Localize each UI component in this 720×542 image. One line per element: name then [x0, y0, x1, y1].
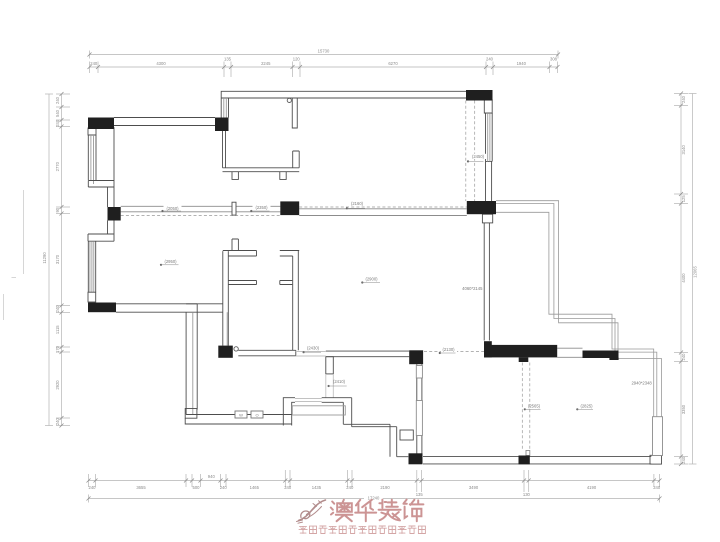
svg-text:940: 940: [208, 474, 216, 479]
svg-text:3350: 3350: [681, 404, 686, 414]
svg-text:3490: 3490: [469, 485, 479, 490]
svg-text:2920: 2920: [55, 380, 60, 390]
svg-text:11290: 11290: [42, 252, 47, 264]
svg-text:125: 125: [681, 195, 686, 203]
svg-text:2245: 2245: [261, 61, 271, 66]
svg-text:12065: 12065: [692, 266, 697, 278]
svg-text:4060*2145: 4060*2145: [462, 286, 483, 291]
svg-text:2190: 2190: [380, 485, 390, 490]
svg-text:240: 240: [681, 456, 686, 464]
svg-text:4400: 4400: [681, 273, 686, 283]
svg-text:135: 135: [224, 57, 232, 62]
svg-text:1435: 1435: [312, 485, 322, 490]
svg-text:240: 240: [55, 305, 60, 313]
svg-text:240: 240: [681, 95, 686, 103]
svg-text:2940*2348: 2940*2348: [631, 381, 652, 386]
svg-text:540: 540: [55, 109, 60, 117]
svg-text:135: 135: [416, 492, 424, 497]
svg-text:3655: 3655: [136, 485, 146, 490]
svg-text:(2565): (2565): [528, 403, 541, 408]
svg-text:(2900): (2900): [365, 277, 378, 282]
svg-text:1115: 1115: [55, 325, 60, 334]
svg-text:90: 90: [55, 207, 60, 212]
svg-text:(2430): (2430): [307, 345, 320, 350]
svg-text:240: 240: [89, 485, 97, 490]
svg-text:240: 240: [653, 485, 661, 490]
svg-text:15730: 15730: [318, 49, 330, 54]
svg-text:240: 240: [681, 353, 686, 361]
svg-text:240: 240: [55, 119, 60, 127]
svg-text:130: 130: [523, 492, 531, 497]
svg-text:240: 240: [346, 485, 354, 490]
svg-text:2770: 2770: [55, 161, 60, 171]
svg-text:17240: 17240: [368, 496, 380, 501]
svg-text:W: W: [239, 413, 243, 418]
svg-text:500: 500: [193, 485, 201, 490]
svg-text:308: 308: [550, 57, 558, 62]
svg-text:1465: 1465: [250, 485, 260, 490]
svg-text:240: 240: [284, 485, 292, 490]
svg-text:240: 240: [55, 96, 60, 104]
svg-text:(2450): (2450): [472, 154, 485, 159]
svg-text:4190: 4190: [587, 485, 597, 490]
svg-text:120: 120: [293, 57, 301, 62]
svg-text:3140: 3140: [681, 144, 686, 154]
svg-text:3170: 3170: [55, 254, 60, 264]
svg-text:240: 240: [220, 485, 228, 490]
svg-text:240: 240: [486, 57, 494, 62]
svg-text:6270: 6270: [388, 61, 398, 66]
svg-text:(2350): (2350): [255, 205, 268, 210]
svg-text:4300: 4300: [156, 61, 166, 66]
svg-text:1940: 1940: [517, 61, 527, 66]
svg-text:170: 170: [55, 345, 60, 353]
svg-text:(2130): (2130): [442, 347, 455, 352]
svg-text:(2825): (2825): [580, 403, 593, 408]
svg-text:(2410): (2410): [333, 379, 346, 384]
svg-text:240: 240: [90, 61, 98, 66]
svg-text:O: O: [255, 413, 258, 418]
svg-text:(2950): (2950): [164, 259, 177, 264]
svg-text:240: 240: [55, 418, 60, 426]
svg-text:(2050): (2050): [166, 206, 179, 211]
svg-text:(2160): (2160): [351, 201, 364, 206]
